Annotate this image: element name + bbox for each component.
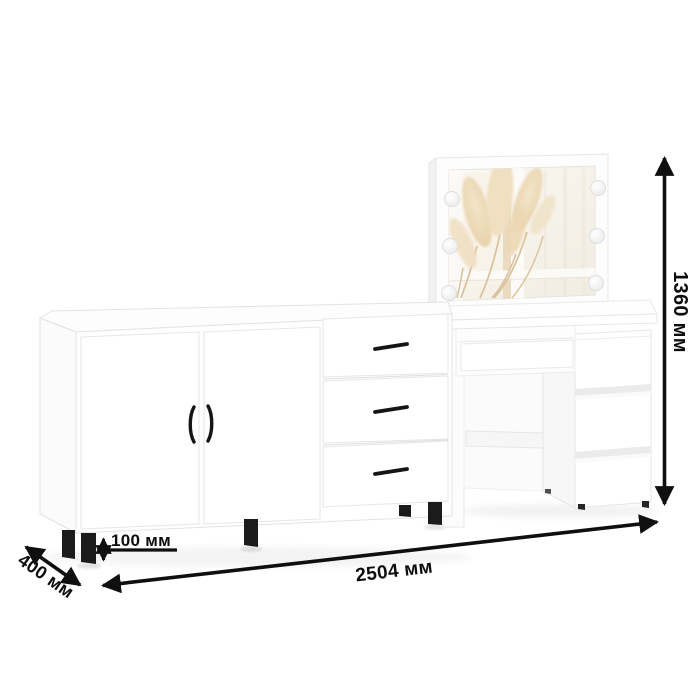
mirror-frame-side xyxy=(429,158,436,312)
light-bulb-icon xyxy=(591,181,606,196)
leg xyxy=(244,519,258,547)
light-bulb-icon xyxy=(445,192,460,207)
vanity-back-rail xyxy=(466,431,543,448)
light-bulb-icon xyxy=(443,239,458,254)
light-bulb-icon xyxy=(590,229,605,244)
leg xyxy=(428,502,442,525)
light-bulb-icon xyxy=(589,276,604,291)
leg xyxy=(62,530,75,559)
sideboard-side-panel xyxy=(40,318,76,533)
vanity-wide-drawer xyxy=(456,324,575,376)
product-dimensions-image: 1360 мм 2504 мм 400 мм 100 мм xyxy=(0,0,700,700)
sideboard-door-right xyxy=(204,327,320,524)
height-dimension: 1360 мм xyxy=(665,158,692,504)
height-label: 1360 мм xyxy=(669,271,691,353)
furniture-diagram-canvas: 1360 мм 2504 мм 400 мм 100 мм xyxy=(0,0,700,700)
leg xyxy=(399,505,411,517)
vanity-mirror xyxy=(429,154,608,312)
light-bulb-icon xyxy=(442,286,457,301)
sideboard-drawers xyxy=(323,314,448,507)
vanity-knee-space xyxy=(464,369,543,491)
leg-height-label: 100 мм xyxy=(111,531,171,550)
leg xyxy=(81,533,96,564)
sideboard-door-left xyxy=(81,332,199,529)
dressing-table xyxy=(429,154,657,527)
sideboard xyxy=(40,302,452,564)
